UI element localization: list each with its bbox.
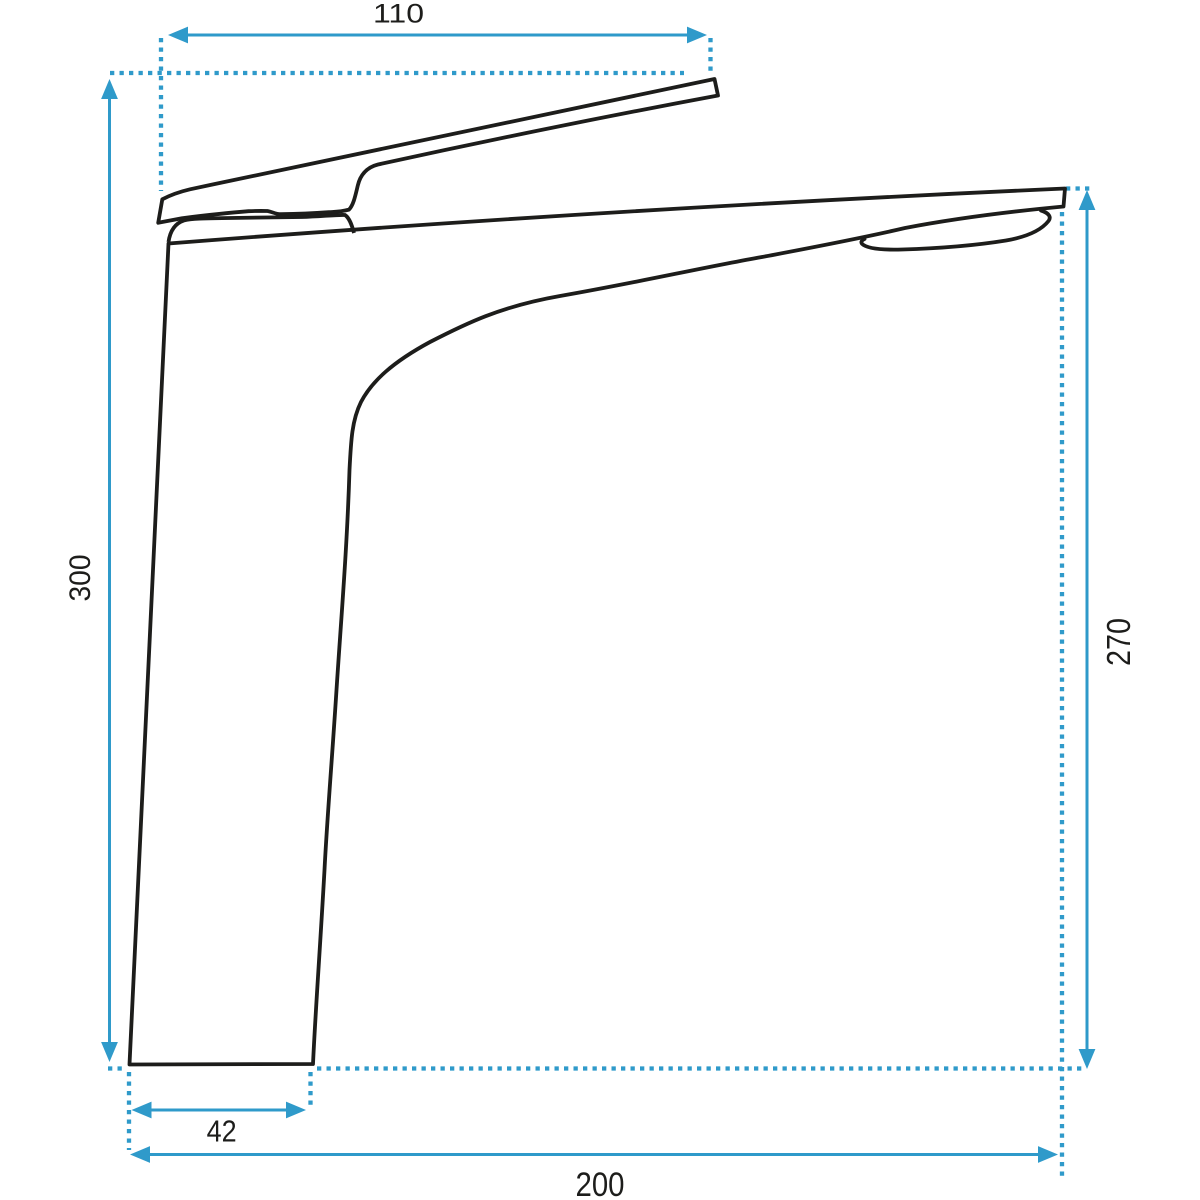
svg-text:42: 42 xyxy=(207,1114,237,1149)
svg-text:300: 300 xyxy=(64,555,97,602)
svg-text:270: 270 xyxy=(1100,618,1137,666)
svg-text:200: 200 xyxy=(576,1166,625,1200)
svg-text:110: 110 xyxy=(373,0,424,29)
